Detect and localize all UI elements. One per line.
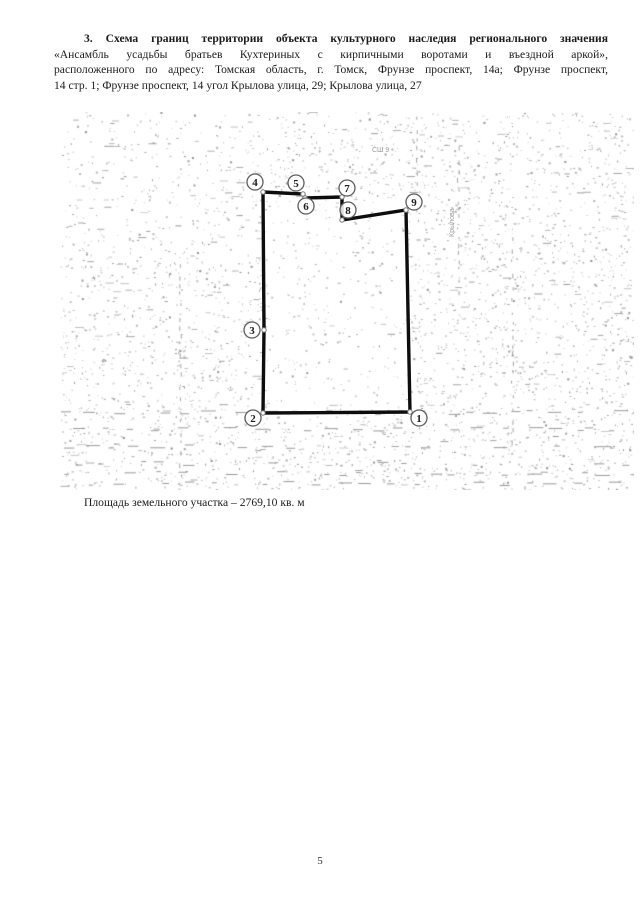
heading-line-4: 14 стр. 1; Фрунзе проспект, 14 угол Крыл…	[54, 78, 608, 94]
boundary-vertex-dot-8	[261, 411, 265, 415]
heading-line-3: расположенного по адресу: Томская област…	[54, 62, 608, 78]
vertex-badge-number-7: 7	[344, 183, 350, 195]
boundary-vertex-dot-9	[262, 328, 266, 332]
vertex-badge-number-2: 2	[250, 413, 256, 425]
heading-line-1: 3. Схема границ территории объекта культ…	[54, 31, 608, 47]
map-street-label-1: СШ 9	[372, 147, 389, 154]
area-caption: Площадь земельного участка – 2769,10 кв.…	[84, 496, 305, 509]
vertex-badge-5: 5	[288, 175, 304, 191]
heading-line-2: «Ансамбль усадьбы братьев Кухтериных с к…	[54, 47, 608, 63]
boundary-vertex-dot-1	[261, 190, 265, 194]
boundary-vertex-dot-6	[404, 208, 408, 212]
heading-paragraph: 3. Схема границ территории объекта культ…	[54, 31, 608, 94]
map-overlay: СШ 9Крылова123456789	[60, 112, 634, 490]
vertex-badge-4: 4	[247, 174, 263, 190]
vertex-badge-3: 3	[244, 322, 260, 338]
vertex-badge-number-8: 8	[345, 205, 351, 217]
vertex-badge-number-3: 3	[249, 325, 255, 337]
vertex-badge-number-4: 4	[252, 177, 258, 189]
vertex-badge-number-1: 1	[416, 413, 422, 425]
vertex-badge-number-6: 6	[303, 201, 309, 213]
map-street-label-2: Крылова	[449, 208, 456, 237]
vertex-badge-1: 1	[411, 410, 427, 426]
territory-boundary-polygon	[263, 192, 410, 413]
vertex-badge-9: 9	[406, 194, 422, 210]
vertex-badge-8: 8	[340, 202, 356, 218]
boundary-vertex-dot-7	[408, 410, 412, 414]
vertex-badge-2: 2	[245, 410, 261, 426]
vertex-badge-7: 7	[339, 180, 355, 196]
boundary-vertex-dot-5	[340, 218, 344, 222]
vertex-badge-6: 6	[298, 198, 314, 214]
vertex-badge-number-9: 9	[411, 197, 417, 209]
document-page: { "heading": { "lines": [ "3. Схема гран…	[0, 0, 640, 905]
vertex-badge-number-5: 5	[293, 178, 299, 190]
page-number: 5	[0, 855, 640, 867]
boundary-map: СШ 9Крылова123456789	[60, 112, 634, 490]
